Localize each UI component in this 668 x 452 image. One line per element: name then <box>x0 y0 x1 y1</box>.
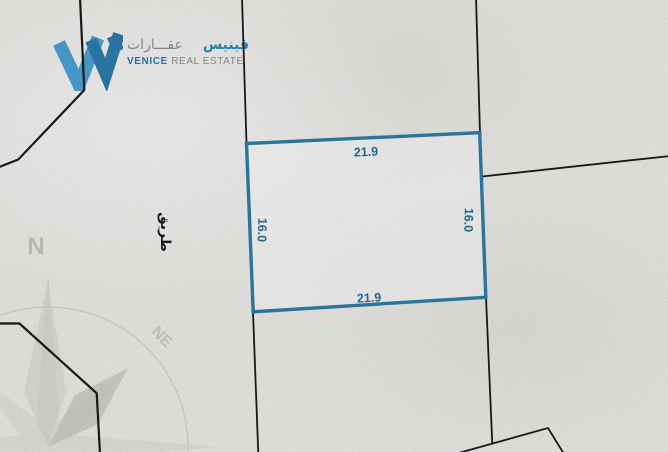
plot-map-canvas: عقـــارات فينيس VENICE REAL ESTATE N NE <box>0 0 668 452</box>
survey-map: N NE 21.9 21.9 16.0 16.0 طريق <box>0 0 668 452</box>
paper-grain-texture <box>0 0 668 452</box>
